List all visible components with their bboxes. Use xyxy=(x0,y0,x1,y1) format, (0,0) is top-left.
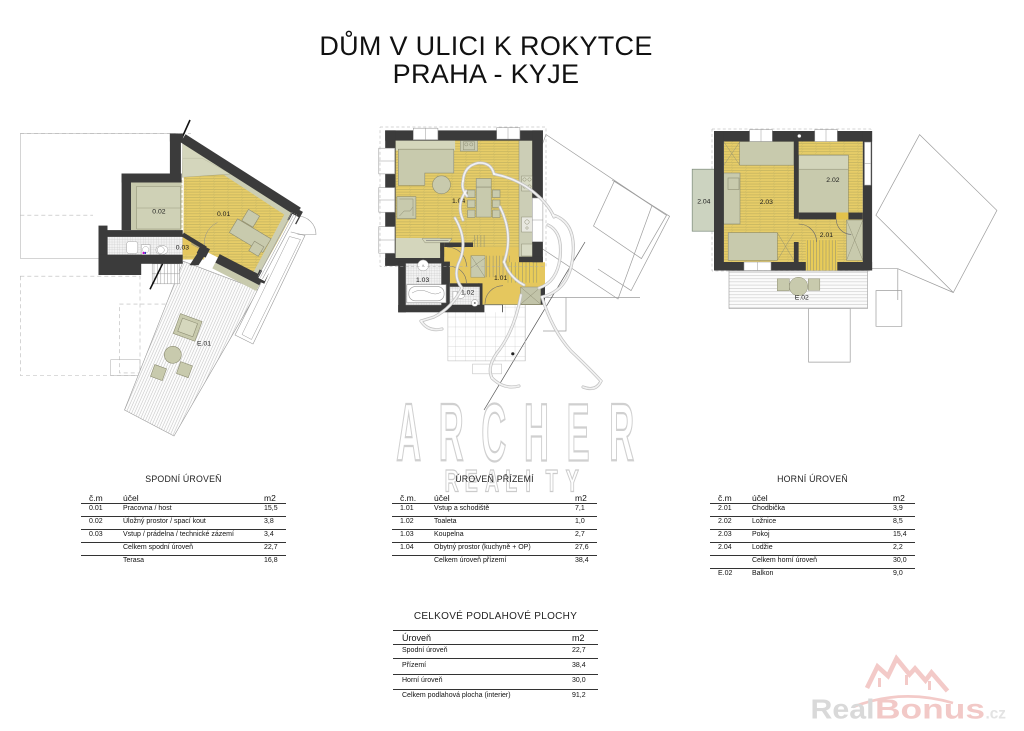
svg-text:0.01: 0.01 xyxy=(217,211,230,218)
svg-text:E.01: E.01 xyxy=(197,341,211,348)
svg-text:2.03: 2.03 xyxy=(760,199,773,206)
svg-text:0.03: 0.03 xyxy=(176,245,189,252)
svg-text:E.02: E.02 xyxy=(795,295,809,302)
svg-text:2.01: 2.01 xyxy=(820,232,833,239)
svg-text:.cz: .cz xyxy=(986,706,1007,723)
svg-text:1.03: 1.03 xyxy=(416,277,429,284)
svg-text:0.02: 0.02 xyxy=(152,208,165,215)
svg-text:Bonus: Bonus xyxy=(875,694,985,725)
svg-text:1.02: 1.02 xyxy=(461,290,474,297)
svg-text:A: A xyxy=(396,387,421,478)
svg-text:R: R xyxy=(609,387,634,478)
svg-text:1.01: 1.01 xyxy=(494,275,507,282)
svg-text:2.02: 2.02 xyxy=(826,177,839,184)
svg-text:1.04: 1.04 xyxy=(452,198,465,205)
svg-text:2.04: 2.04 xyxy=(697,199,710,206)
svg-text:Real: Real xyxy=(811,694,875,725)
